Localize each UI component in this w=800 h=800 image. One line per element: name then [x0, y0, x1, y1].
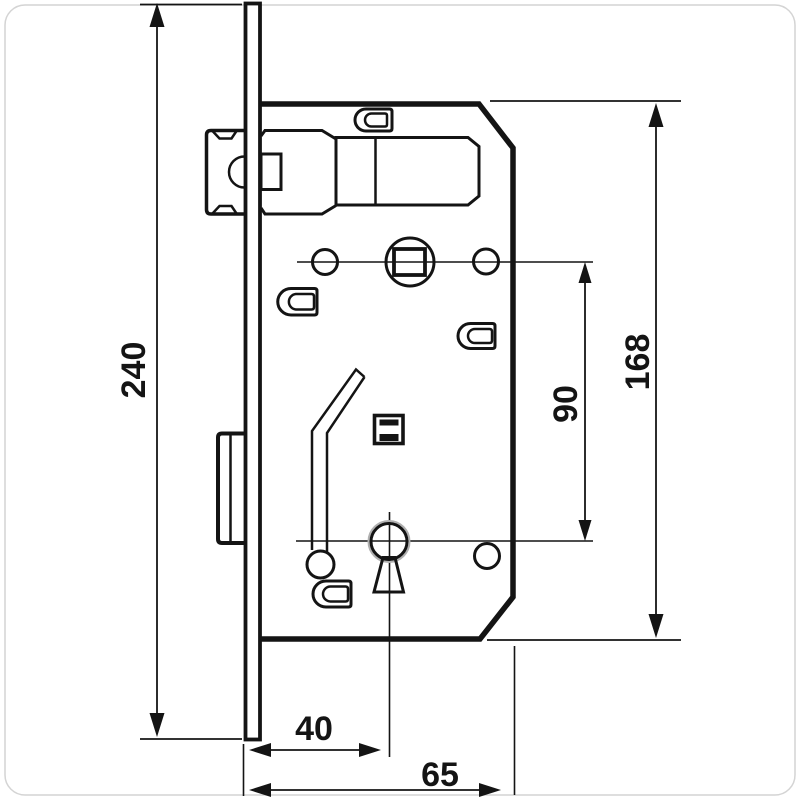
latch-mid-bottom-edge — [261, 206, 336, 215]
screw-post-bottom-outer — [313, 581, 351, 607]
dimension-240: 240 — [115, 3, 242, 739]
spring-box-bar-top — [380, 420, 399, 426]
dimension-65: 65 — [249, 756, 501, 797]
dim65-label: 65 — [421, 756, 459, 794]
image-border — [5, 5, 795, 795]
screw-post-left-inner — [289, 294, 314, 310]
drawing-canvas: 240 168 90 40 65 — [0, 0, 800, 800]
latch-head-arc — [229, 157, 245, 188]
lock-technical-drawing: 240 168 90 40 65 — [0, 0, 800, 800]
dim90-label: 90 — [547, 385, 585, 423]
dimension-40: 40 — [249, 710, 381, 757]
latch-body — [336, 138, 479, 206]
dim40-label: 40 — [295, 710, 333, 748]
latch-guide-block — [261, 154, 281, 190]
dim90-arrow-down-icon — [579, 520, 592, 541]
deadbolt — [218, 434, 245, 544]
dim40-arrow-right-icon — [359, 743, 381, 757]
dim240-arrow-up-icon — [150, 3, 165, 27]
screw-post-bottom-inner — [323, 587, 348, 602]
screw-post-top-inner — [365, 114, 387, 127]
dim40-arrow-left-icon — [249, 743, 271, 757]
dimension-168: 168 — [487, 101, 681, 640]
lever-spring — [307, 370, 365, 579]
dim90-arrow-up-icon — [579, 262, 592, 283]
spring-box — [375, 416, 404, 444]
spring-box-bar-bottom — [380, 434, 399, 441]
screw-post-right-outer — [458, 324, 495, 349]
latch-mid-top-edge — [261, 131, 336, 140]
dim168-arrow-down-icon — [649, 614, 664, 638]
latch-head-outline — [207, 131, 246, 215]
dim168-arrow-up-icon — [649, 103, 664, 127]
lever-arm — [312, 370, 365, 553]
lever-pivot-circle — [307, 551, 334, 578]
faceplate — [246, 4, 261, 740]
screw-post-right-inner — [468, 329, 492, 343]
dim240-label: 240 — [115, 342, 153, 399]
dim240-arrow-down-icon — [150, 713, 165, 737]
dimension-90: 90 — [547, 262, 592, 541]
dim168-label: 168 — [619, 334, 657, 391]
screw-post-left-outer — [278, 289, 317, 316]
screw-posts — [278, 109, 495, 607]
bottom-fixing-hole — [475, 544, 500, 569]
